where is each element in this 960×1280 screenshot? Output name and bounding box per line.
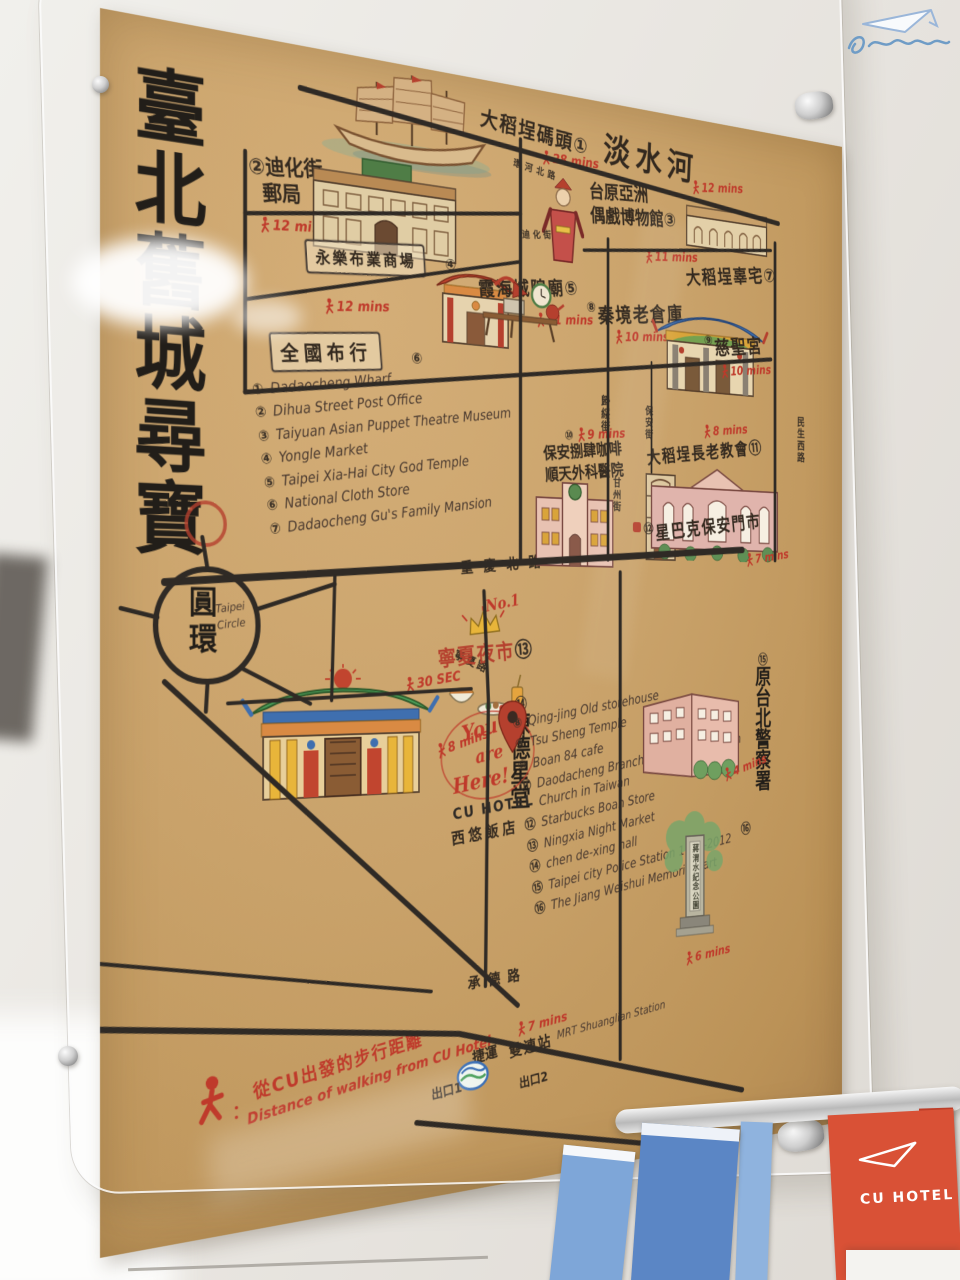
hand-drawn-map-poster: 臺北舊城尋寶 大稻埕碼頭① 28 mins 環河北路 淡水河 ②迪 (100, 8, 842, 1258)
counter-edge (128, 1256, 488, 1272)
photo-of-framed-map: 臺北舊城尋寶 大稻埕碼頭① 28 mins 環河北路 淡水河 ②迪 (0, 0, 960, 1280)
person-shadow (0, 553, 48, 742)
road-network (100, 8, 842, 1258)
blue-brochure[interactable] (630, 1123, 740, 1280)
brochure-plane-icon (853, 1138, 925, 1176)
white-box (846, 1250, 960, 1280)
standoff-top-right (793, 89, 834, 121)
blue-brochure[interactable] (735, 1121, 773, 1280)
brochure-title: CU HOTEL (860, 1187, 955, 1208)
hotel-logo-icon (833, 4, 955, 62)
blue-brochure[interactable] (549, 1145, 636, 1280)
standoff-top-left (92, 76, 109, 93)
standoff-bottom-left (58, 1046, 78, 1066)
